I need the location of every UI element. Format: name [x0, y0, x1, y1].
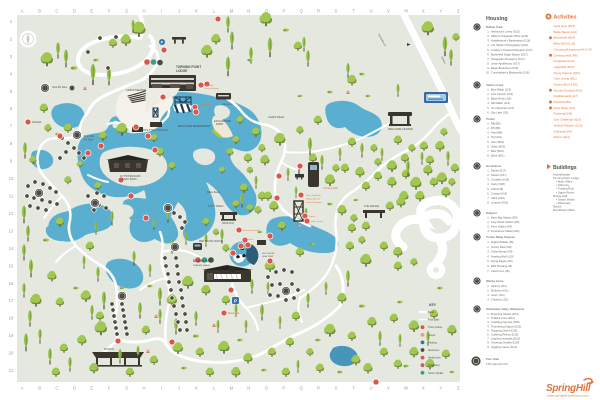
svg-text:Flying Squirrel (Q10): Flying Squirrel (Q10) — [554, 71, 581, 75]
svg-text:1.: 1. — [487, 312, 489, 316]
svg-text:Paintball: Paintball — [32, 121, 42, 124]
svg-text:TRADER SHACK: TRADER SHACK — [193, 264, 211, 267]
svg-text:J.E. Melton Photography (G16): J.E. Melton Photography (G16) — [491, 43, 528, 47]
svg-text:10.: 10. — [486, 71, 490, 75]
svg-text:4.: 4. — [487, 101, 489, 105]
svg-text:PAVILION: PAVILION — [222, 221, 234, 225]
svg-text:7.: 7. — [487, 57, 489, 61]
svg-text:K: K — [195, 9, 198, 14]
svg-text:Bifur (B10): Bifur (B10) — [491, 149, 504, 153]
svg-text:4.: 4. — [487, 298, 489, 302]
svg-text:Storm shelter: Storm shelter — [428, 371, 444, 375]
svg-text:Browning Sharks (D14): Browning Sharks (D14) — [491, 312, 519, 316]
svg-text:Grizzly Bear (K8): Grizzly Bear (K8) — [491, 245, 512, 249]
svg-text:Z: Z — [457, 9, 460, 14]
svg-text:T: T — [352, 9, 355, 14]
svg-text:I: I — [161, 386, 162, 391]
svg-text:H: H — [143, 9, 146, 14]
svg-text:4.: 4. — [487, 135, 489, 139]
svg-text:16: 16 — [9, 281, 14, 286]
svg-text:Hocker (B12 & D5): Hocker (B12 & D5) — [554, 83, 578, 87]
svg-text:Timber Ridge Teepees: Timber Ridge Teepees — [486, 235, 515, 239]
svg-text:King Street Station (D5): King Street Station (D5) — [491, 220, 519, 224]
svg-text:Raven (K17): Raven (K17) — [491, 169, 506, 173]
svg-text:10: 10 — [9, 176, 14, 181]
svg-text:X: X — [422, 9, 425, 14]
svg-text:K: K — [195, 386, 198, 391]
svg-text:R: R — [317, 386, 320, 391]
svg-text:1.: 1. — [487, 122, 489, 126]
svg-text:7.: 7. — [487, 149, 489, 153]
svg-text:Union Apothecary (G17): Union Apothecary (G17) — [491, 62, 520, 66]
svg-text:Bikes (B13 & J5): Bikes (B13 & J5) — [554, 42, 576, 46]
svg-text:D: D — [73, 386, 76, 391]
svg-text:Clark's Creek: Clark's Creek — [486, 83, 504, 87]
svg-text:18: 18 — [9, 316, 14, 321]
svg-text:J: J — [178, 386, 180, 391]
svg-text:DINING HALL: DINING HALL — [193, 259, 214, 263]
svg-text:3.: 3. — [487, 131, 489, 135]
svg-text:5.: 5. — [487, 106, 489, 110]
svg-text:2.: 2. — [487, 220, 489, 224]
svg-text:Battle Bears (L14): Battle Bears (L14) — [554, 30, 577, 34]
svg-text:9.: 9. — [487, 345, 489, 349]
svg-text:8.: 8. — [487, 62, 489, 66]
svg-text:Grill (K18): Grill (K18) — [491, 187, 503, 191]
svg-text:Blue Ridge (J13): Blue Ridge (J13) — [491, 88, 511, 92]
svg-text:Clever Fox (J8): Clever Fox (J8) — [491, 269, 509, 273]
svg-text:Firepit: Firepit — [428, 333, 435, 337]
svg-text:5.: 5. — [487, 140, 489, 144]
svg-text:Loramie (K18): Loramie (K18) — [491, 201, 508, 205]
svg-text:U: U — [369, 386, 372, 391]
svg-text:19: 19 — [9, 333, 14, 338]
svg-text:Dillton's Telegraph Office (G1: Dillton's Telegraph Office (G15) — [491, 34, 528, 38]
svg-text:3.: 3. — [487, 320, 489, 324]
svg-text:3.: 3. — [487, 97, 489, 101]
svg-text:6.: 6. — [487, 144, 489, 148]
svg-text:Paddleboards (H7): Paddleboards (H7) — [554, 94, 578, 98]
svg-text:Leaping Leopards (D15): Leaping Leopards (D15) — [491, 337, 520, 341]
svg-text:9.: 9. — [487, 66, 489, 70]
svg-text:A: A — [21, 386, 24, 391]
svg-text:Hartstock's Livery (G15): Hartstock's Livery (G15) — [491, 30, 520, 34]
svg-text:SpringHill: SpringHill — [546, 383, 591, 394]
svg-text:EAST LAKE WATERFRONT: EAST LAKE WATERFRONT — [178, 124, 211, 128]
svg-text:12: 12 — [9, 211, 14, 216]
svg-text:15: 15 — [9, 263, 14, 268]
svg-text:RV Sites: RV Sites — [84, 139, 94, 142]
svg-text:13: 13 — [9, 228, 14, 233]
svg-text:2.: 2. — [487, 245, 489, 249]
svg-text:Party Barge: Party Barge — [200, 103, 212, 106]
svg-text:RB (B9): RB (B9) — [491, 122, 501, 126]
svg-text:CHAIN FIELD: CHAIN FIELD — [268, 115, 284, 119]
svg-text:Stangesler Provisions (G17): Stangesler Provisions (G17) — [491, 57, 525, 61]
svg-text:Railyard: Railyard — [486, 211, 497, 215]
svg-text:Tram pickup: Tram pickup — [428, 325, 443, 329]
svg-text:B: B — [38, 386, 41, 391]
svg-text:3.: 3. — [487, 293, 489, 297]
svg-text:20: 20 — [9, 351, 14, 356]
svg-text:J: J — [178, 9, 180, 14]
svg-text:D: D — [73, 9, 76, 14]
svg-text:6.: 6. — [487, 333, 489, 337]
svg-text:8.: 8. — [487, 154, 489, 158]
svg-text:RED BRUSH OFFICE: RED BRUSH OFFICE — [199, 240, 223, 243]
svg-text:6.: 6. — [487, 264, 489, 268]
svg-text:Foot path: Foot path — [428, 318, 440, 322]
svg-text:F: F — [108, 386, 111, 391]
svg-text:THE RANGE: THE RANGE — [364, 204, 379, 208]
svg-text:Climbing Wall (R8): Climbing Wall (R8) — [554, 53, 578, 57]
svg-text:Y: Y — [439, 386, 442, 391]
svg-text:2.: 2. — [487, 92, 489, 96]
svg-text:C: C — [55, 386, 58, 391]
svg-text:Black Rock (J14): Black Rock (J14) — [491, 97, 511, 101]
svg-text:P: P — [234, 298, 237, 303]
svg-text:WELCOME CENTER: WELCOME CENTER — [388, 127, 413, 131]
svg-text:H: H — [143, 386, 146, 391]
svg-text:Crosap (K18): Crosap (K18) — [491, 191, 507, 195]
svg-text:M: M — [230, 9, 234, 14]
svg-text:Crashing Rhinos (D16): Crashing Rhinos (D16) — [491, 333, 518, 337]
svg-text:Zipline: Zipline — [309, 216, 316, 218]
svg-text:Basketball (M16): Basketball (M16) — [554, 36, 576, 40]
svg-text:Battle Bears: Battle Bears — [207, 191, 221, 194]
svg-text:Howling Wolf (J10): Howling Wolf (J10) — [491, 254, 514, 258]
svg-text:Clark (K18): Clark (K18) — [491, 196, 505, 200]
svg-text:DAIRY BARN: DAIRY BARN — [122, 178, 137, 181]
svg-text:QUAY VIEW: QUAY VIEW — [262, 255, 273, 258]
svg-text:www.springhillexperiences.com: www.springhillexperiences.com — [547, 394, 589, 398]
svg-text:1.: 1. — [487, 88, 489, 92]
svg-text:Dodgeball (H12): Dodgeball (H12) — [554, 59, 575, 63]
svg-text:8.: 8. — [487, 201, 489, 205]
svg-text:A: A — [21, 9, 24, 14]
svg-text:V: V — [387, 9, 390, 14]
svg-text:Parking: Parking — [428, 340, 437, 344]
svg-text:3.: 3. — [487, 178, 489, 182]
svg-text:Volleyball (K4): Volleyball (K4) — [554, 129, 573, 133]
svg-text:4.: 4. — [487, 182, 489, 186]
svg-text:Gaga Ball (M14): Gaga Ball (M14) — [554, 65, 575, 69]
svg-text:Still Water (J14): Still Water (J14) — [491, 101, 510, 105]
svg-text:Groundnest: Groundnest — [486, 164, 501, 168]
svg-text:Carty (K18): Carty (K18) — [491, 182, 505, 186]
svg-text:Bofur (B11): Bofur (B11) — [491, 154, 505, 158]
svg-text:Lemon Royalty: Lemon Royalty — [204, 87, 219, 90]
svg-text:Gaga Ball: Gaga Ball — [236, 246, 246, 248]
svg-text:Solo Challenge: Solo Challenge — [306, 195, 322, 197]
svg-text:7.: 7. — [487, 196, 489, 200]
svg-text:4.: 4. — [487, 254, 489, 258]
svg-text:Timber: Timber — [486, 117, 495, 121]
svg-text:Restroom: Restroom — [428, 348, 439, 352]
svg-text:Pine Vista: Pine Vista — [486, 357, 499, 361]
svg-text:4.: 4. — [487, 43, 489, 47]
svg-text:1.: 1. — [487, 30, 489, 34]
svg-text:Y: Y — [439, 9, 442, 14]
svg-text:Climbing Wall: Climbing Wall — [323, 187, 338, 190]
svg-text:Ott (A10): Ott (A10) — [491, 135, 502, 139]
svg-text:4.: 4. — [487, 229, 489, 233]
svg-text:1.: 1. — [487, 240, 489, 244]
svg-text:Back Bay Station (D4): Back Bay Station (D4) — [491, 216, 518, 220]
svg-text:Acorn (J11): Acorn (J11) — [491, 293, 505, 297]
svg-text:Mulberry (K11): Mulberry (K11) — [491, 289, 509, 293]
svg-text:Aqua Gym (B13): Aqua Gym (B13) — [554, 24, 576, 28]
svg-text:Romping Otters (D15): Romping Otters (D15) — [491, 328, 517, 332]
svg-text:S: S — [335, 9, 338, 14]
svg-text:F: F — [108, 9, 111, 14]
svg-text:AMPHITHEATER: AMPHITHEATER — [126, 88, 146, 92]
svg-text:Pharmacy: Pharmacy — [428, 363, 440, 367]
svg-text:1.: 1. — [487, 216, 489, 220]
svg-text:Flying Squirrel: Flying Squirrel — [306, 198, 320, 201]
svg-text:4.: 4. — [487, 324, 489, 328]
svg-text:Whitewater Valley (Wigwams): Whitewater Valley (Wigwams) — [486, 307, 524, 311]
svg-text:Activities: Activities — [554, 15, 577, 21]
svg-text:E: E — [90, 386, 93, 391]
svg-text:Volleyball: Volleyball — [204, 85, 214, 87]
svg-text:LEFT SHORE: LEFT SHORE — [262, 253, 275, 255]
svg-text:Sky Lake (I13): Sky Lake (I13) — [491, 110, 508, 114]
svg-text:Solo Challenge (Q10): Solo Challenge (Q10) — [554, 118, 582, 122]
svg-text:S: S — [335, 386, 338, 391]
svg-text:Hickory (J11): Hickory (J11) — [491, 284, 507, 288]
svg-text:KITTY FIELD: KITTY FIELD — [208, 204, 224, 208]
svg-text:4 RV sites (D4 C5): 4 RV sites (D4 C5) — [486, 362, 508, 366]
svg-text:Canoeing/Kayaking (A4 & H7): Canoeing/Kayaking (A4 & H7) — [554, 47, 593, 51]
svg-text:FB (B9): FB (B9) — [491, 126, 500, 130]
svg-text:Buildings: Buildings — [553, 165, 577, 171]
svg-text:Crackling Hyenas (D15): Crackling Hyenas (D15) — [491, 320, 520, 324]
svg-text:Dodgeball: Dodgeball — [243, 239, 253, 241]
svg-text:Vista RV Sites: Vista RV Sites — [52, 86, 68, 89]
svg-text:N: N — [247, 9, 250, 14]
svg-text:5.: 5. — [487, 48, 489, 52]
svg-text:Human Foosball: Human Foosball — [243, 230, 259, 232]
svg-text:M: M — [230, 386, 234, 391]
svg-text:Glen (B10): Glen (B10) — [491, 140, 504, 144]
svg-text:Zipline (Q11): Zipline (Q11) — [554, 135, 571, 139]
svg-text:Prideful Lions (D14): Prideful Lions (D14) — [491, 316, 515, 320]
svg-text:POINT: POINT — [216, 123, 224, 126]
svg-text:11: 11 — [9, 194, 14, 199]
svg-text:Human Foosball (B12): Human Foosball (B12) — [554, 88, 583, 92]
svg-text:Towering Giraffes (D14): Towering Giraffes (D14) — [491, 341, 519, 345]
svg-text:3.: 3. — [487, 250, 489, 254]
svg-text:Party Barge (K5): Party Barge (K5) — [554, 106, 576, 110]
svg-text:Great Moose (K8): Great Moose (K8) — [491, 250, 512, 254]
svg-text:RANCH: RANCH — [104, 347, 114, 351]
svg-text:U: U — [369, 9, 372, 14]
svg-text:Lost Canyon (J13): Lost Canyon (J13) — [491, 92, 513, 96]
svg-text:PIER DECK: PIER DECK — [222, 104, 233, 106]
svg-text:3.: 3. — [487, 39, 489, 43]
svg-text:B: B — [38, 9, 41, 14]
svg-text:1.: 1. — [487, 169, 489, 173]
svg-text:Crosley's Overland Dispatch (G: Crosley's Overland Dispatch (G17) — [491, 48, 533, 52]
svg-text:3.: 3. — [487, 225, 489, 229]
svg-text:LODGE: LODGE — [176, 69, 187, 73]
svg-text:KEY: KEY — [429, 303, 437, 307]
svg-text:6.: 6. — [487, 191, 489, 195]
svg-text:X: X — [422, 386, 425, 391]
svg-text:Chestnut (J11): Chestnut (J11) — [491, 298, 509, 302]
svg-text:5.: 5. — [487, 259, 489, 263]
svg-text:Nest (B8): Nest (B8) — [491, 131, 502, 135]
svg-text:8.: 8. — [487, 341, 489, 345]
svg-text:T: T — [352, 386, 355, 391]
svg-text:2.: 2. — [487, 316, 489, 320]
svg-text:7.: 7. — [487, 269, 489, 273]
svg-text:Gilain (B10): Gilain (B10) — [491, 144, 505, 148]
svg-text:Butterfield Stage Station (G17: Butterfield Stage Station (G17) — [491, 52, 528, 56]
svg-text:7.: 7. — [487, 337, 489, 341]
svg-text:Pickleball (N8): Pickleball (N8) — [554, 112, 573, 116]
svg-text:I: I — [161, 9, 162, 14]
svg-text:Giant Swing (B11): Giant Swing (B11) — [554, 77, 577, 81]
svg-text:Health hub: Health hub — [428, 356, 441, 360]
svg-text:N: N — [247, 386, 250, 391]
svg-text:Kestrel (K17): Kestrel (K17) — [491, 173, 507, 177]
svg-text:R: R — [317, 9, 320, 14]
svg-text:Huddlestone's Barbershop (G16): Huddlestone's Barbershop (G16) — [491, 39, 530, 43]
svg-text:Wild Mustang (I8): Wild Mustang (I8) — [491, 264, 512, 268]
svg-text:P: P — [282, 9, 285, 14]
svg-text:Mighty Buffalo (J8): Mighty Buffalo (J8) — [491, 240, 513, 244]
svg-text:2.: 2. — [487, 289, 489, 293]
svg-text:Road: Road — [428, 310, 435, 314]
svg-text:C: C — [55, 9, 58, 14]
svg-text:Walnut Grove: Walnut Grove — [486, 279, 504, 283]
svg-text:Z: Z — [457, 386, 460, 391]
svg-text:Vertical Playpen (Q10): Vertical Playpen (Q10) — [554, 123, 583, 127]
svg-text:Housing: Housing — [486, 16, 508, 22]
svg-text:1.: 1. — [487, 284, 489, 288]
svg-text:Thundering Hippos (D15): Thundering Hippos (D15) — [491, 324, 521, 328]
svg-text:Flying Eagle (J10): Flying Eagle (J10) — [491, 259, 513, 263]
svg-text:E: E — [90, 9, 93, 14]
svg-text:Paintball (B6): Paintball (B6) — [554, 100, 571, 104]
svg-text:Basketball: Basketball — [228, 312, 239, 315]
svg-text:6.: 6. — [487, 52, 489, 56]
svg-text:2.: 2. — [487, 173, 489, 177]
svg-text:Vertical Playpen: Vertical Playpen — [306, 201, 322, 204]
svg-text:21: 21 — [9, 368, 14, 373]
svg-text:Giant Swing: Giant Swing — [311, 220, 324, 223]
svg-text:Cunningham's Blacksmith (G16): Cunningham's Blacksmith (G16) — [491, 71, 530, 75]
svg-text:2.: 2. — [487, 126, 489, 130]
svg-text:Providence Station (E4): Providence Station (E4) — [491, 229, 519, 233]
svg-text:Giggling Geese (D14): Giggling Geese (D14) — [491, 345, 517, 349]
svg-text:Condash (K18): Condash (K18) — [491, 178, 509, 182]
svg-text:V: V — [387, 386, 390, 391]
svg-text:P: P — [282, 386, 285, 391]
svg-text:Red Brush Office: Red Brush Office — [553, 208, 575, 212]
svg-text:Iron Mountain (I13): Iron Mountain (I13) — [491, 106, 514, 110]
svg-text:6.: 6. — [487, 110, 489, 114]
svg-text:Eagle Bookshop (G16): Eagle Bookshop (G16) — [491, 66, 518, 70]
svg-text:Buffalo Track: Buffalo Track — [486, 25, 503, 29]
svg-text:Penn Station (F4): Penn Station (F4) — [491, 225, 512, 229]
svg-text:2.: 2. — [487, 34, 489, 38]
svg-text:PIKE POINT PAVILION: PIKE POINT PAVILION — [143, 129, 168, 132]
svg-text:14: 14 — [9, 246, 14, 251]
svg-text:P: P — [161, 40, 164, 45]
svg-text:5.: 5. — [487, 328, 489, 332]
svg-text:17: 17 — [9, 298, 14, 303]
svg-text:5.: 5. — [487, 187, 489, 191]
